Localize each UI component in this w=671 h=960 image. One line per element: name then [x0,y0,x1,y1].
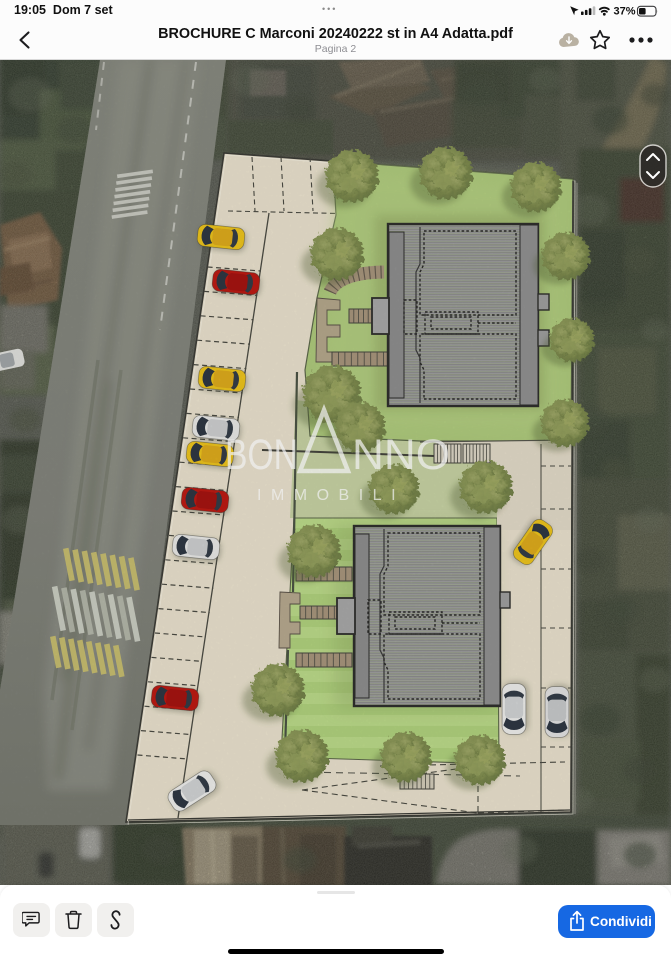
svg-text:37%: 37% [614,6,636,18]
